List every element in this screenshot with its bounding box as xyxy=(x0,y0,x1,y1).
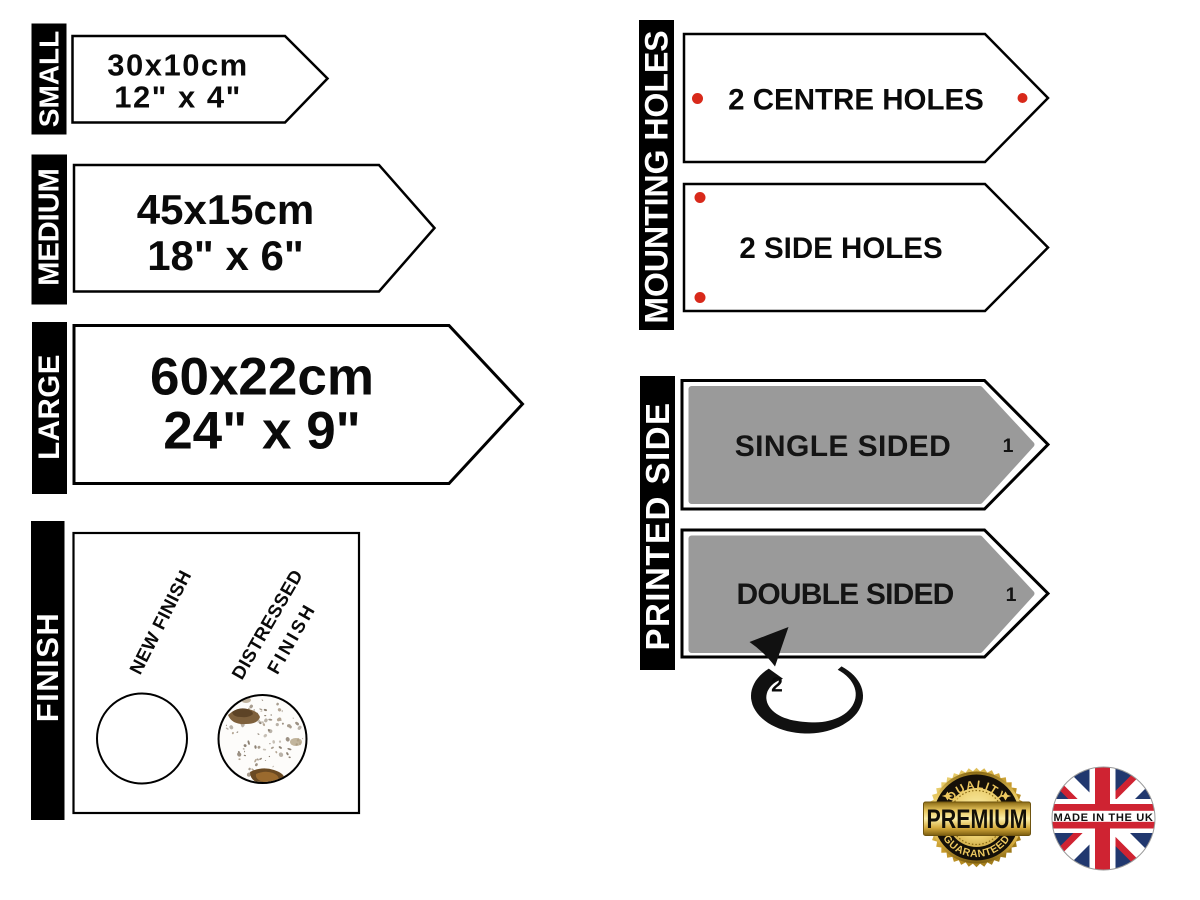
svg-text:1: 1 xyxy=(1003,435,1014,457)
svg-text:PREMIUM: PREMIUM xyxy=(927,804,1028,834)
svg-text:DOUBLE SIDED: DOUBLE SIDED xyxy=(736,578,953,611)
svg-text:60x22cm: 60x22cm xyxy=(150,348,374,407)
svg-text:1: 1 xyxy=(1006,584,1017,606)
svg-text:MOUNTING HOLES: MOUNTING HOLES xyxy=(639,30,675,323)
svg-text:12" x 4": 12" x 4" xyxy=(114,80,242,115)
svg-text:24" x 9": 24" x 9" xyxy=(163,402,361,461)
svg-text:18" x 6": 18" x 6" xyxy=(147,232,304,279)
svg-text:LARGE: LARGE xyxy=(33,354,66,460)
svg-text:PRINTED SIDE: PRINTED SIDE xyxy=(639,401,676,650)
svg-text:SINGLE SIDED: SINGLE SIDED xyxy=(735,430,952,463)
svg-text:MADE IN THE UK: MADE IN THE UK xyxy=(1054,812,1154,824)
svg-text:2: 2 xyxy=(771,674,783,697)
svg-text:MEDIUM: MEDIUM xyxy=(34,168,66,286)
svg-text:FINISH: FINISH xyxy=(30,612,65,723)
svg-text:2 CENTRE HOLES: 2 CENTRE HOLES xyxy=(728,84,984,117)
svg-text:45x15cm: 45x15cm xyxy=(137,186,315,233)
svg-text:2 SIDE HOLES: 2 SIDE HOLES xyxy=(739,232,942,265)
svg-text:30x10cm: 30x10cm xyxy=(107,48,249,83)
svg-text:SMALL: SMALL xyxy=(34,31,65,127)
